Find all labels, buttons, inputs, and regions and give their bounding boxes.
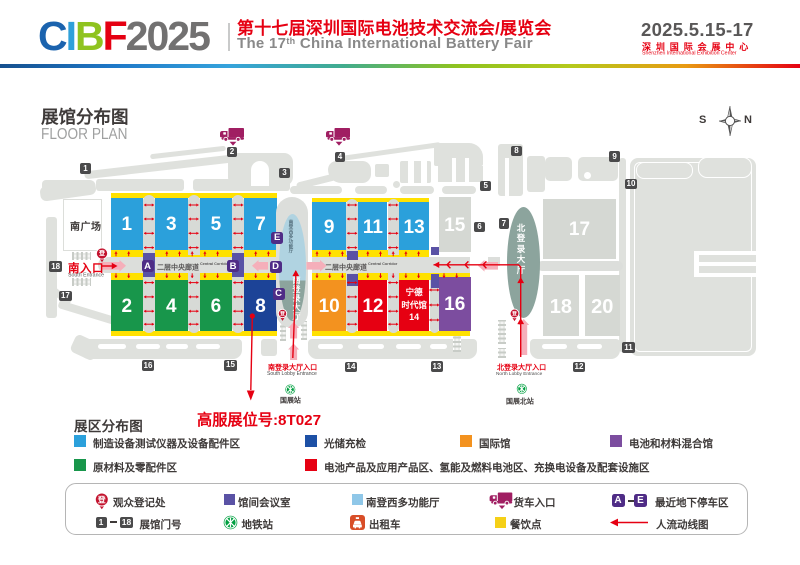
svg-text:登: 登 <box>97 495 107 505</box>
